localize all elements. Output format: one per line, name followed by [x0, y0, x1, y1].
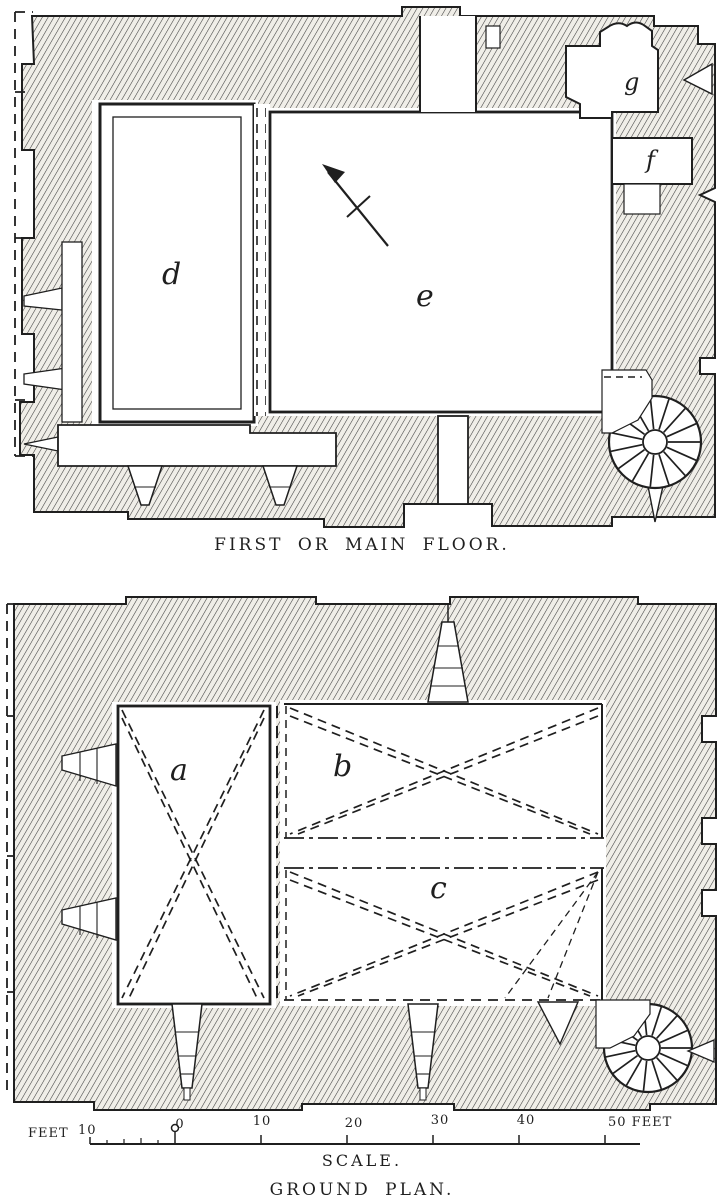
scale-tick-label: 30 [431, 1113, 450, 1128]
scale-tick-label: 40 [517, 1113, 536, 1128]
scale-caption: SCALE. [322, 1151, 402, 1170]
room-b-label: b [333, 749, 352, 784]
scale-major-ticks [261, 1135, 605, 1144]
bottom-passage [438, 416, 468, 504]
scale-left-tick-label: 10 [78, 1123, 97, 1138]
ground-plan-caption: GROUND PLAN. [270, 1180, 455, 1200]
scale-tick-label: 20 [345, 1116, 364, 1131]
room-e [266, 108, 616, 416]
projected-outline-dashed [7, 604, 14, 1096]
room-g-label: g [624, 68, 639, 96]
room-e-label: e [416, 279, 434, 314]
scale-tick-label: 10 [253, 1114, 272, 1129]
room-a-label: a [170, 753, 188, 788]
room-c-label: c [430, 871, 447, 906]
ground-plan: a b c FEET 10 0 10 20 30 40 50 FEET SCAL… [0, 596, 724, 1200]
first-floor-plan: d e f g FIRST OR MAIN FLOOR. [0, 0, 724, 560]
scale-tick-label: 0 [175, 1117, 184, 1132]
scanned-plan-page: d e f g FIRST OR MAIN FLOOR. [0, 0, 724, 1200]
scale-unit-left: FEET [28, 1126, 69, 1141]
first-floor-caption: FIRST OR MAIN FLOOR. [214, 535, 510, 555]
room-a [112, 702, 276, 1008]
rooms-bc-floor [280, 700, 606, 1006]
scale-right-label: 50 FEET [608, 1115, 672, 1130]
room-d-label: d [162, 257, 181, 292]
scale-bar: FEET 10 0 10 20 30 40 50 FEET SCALE. [28, 1113, 672, 1170]
